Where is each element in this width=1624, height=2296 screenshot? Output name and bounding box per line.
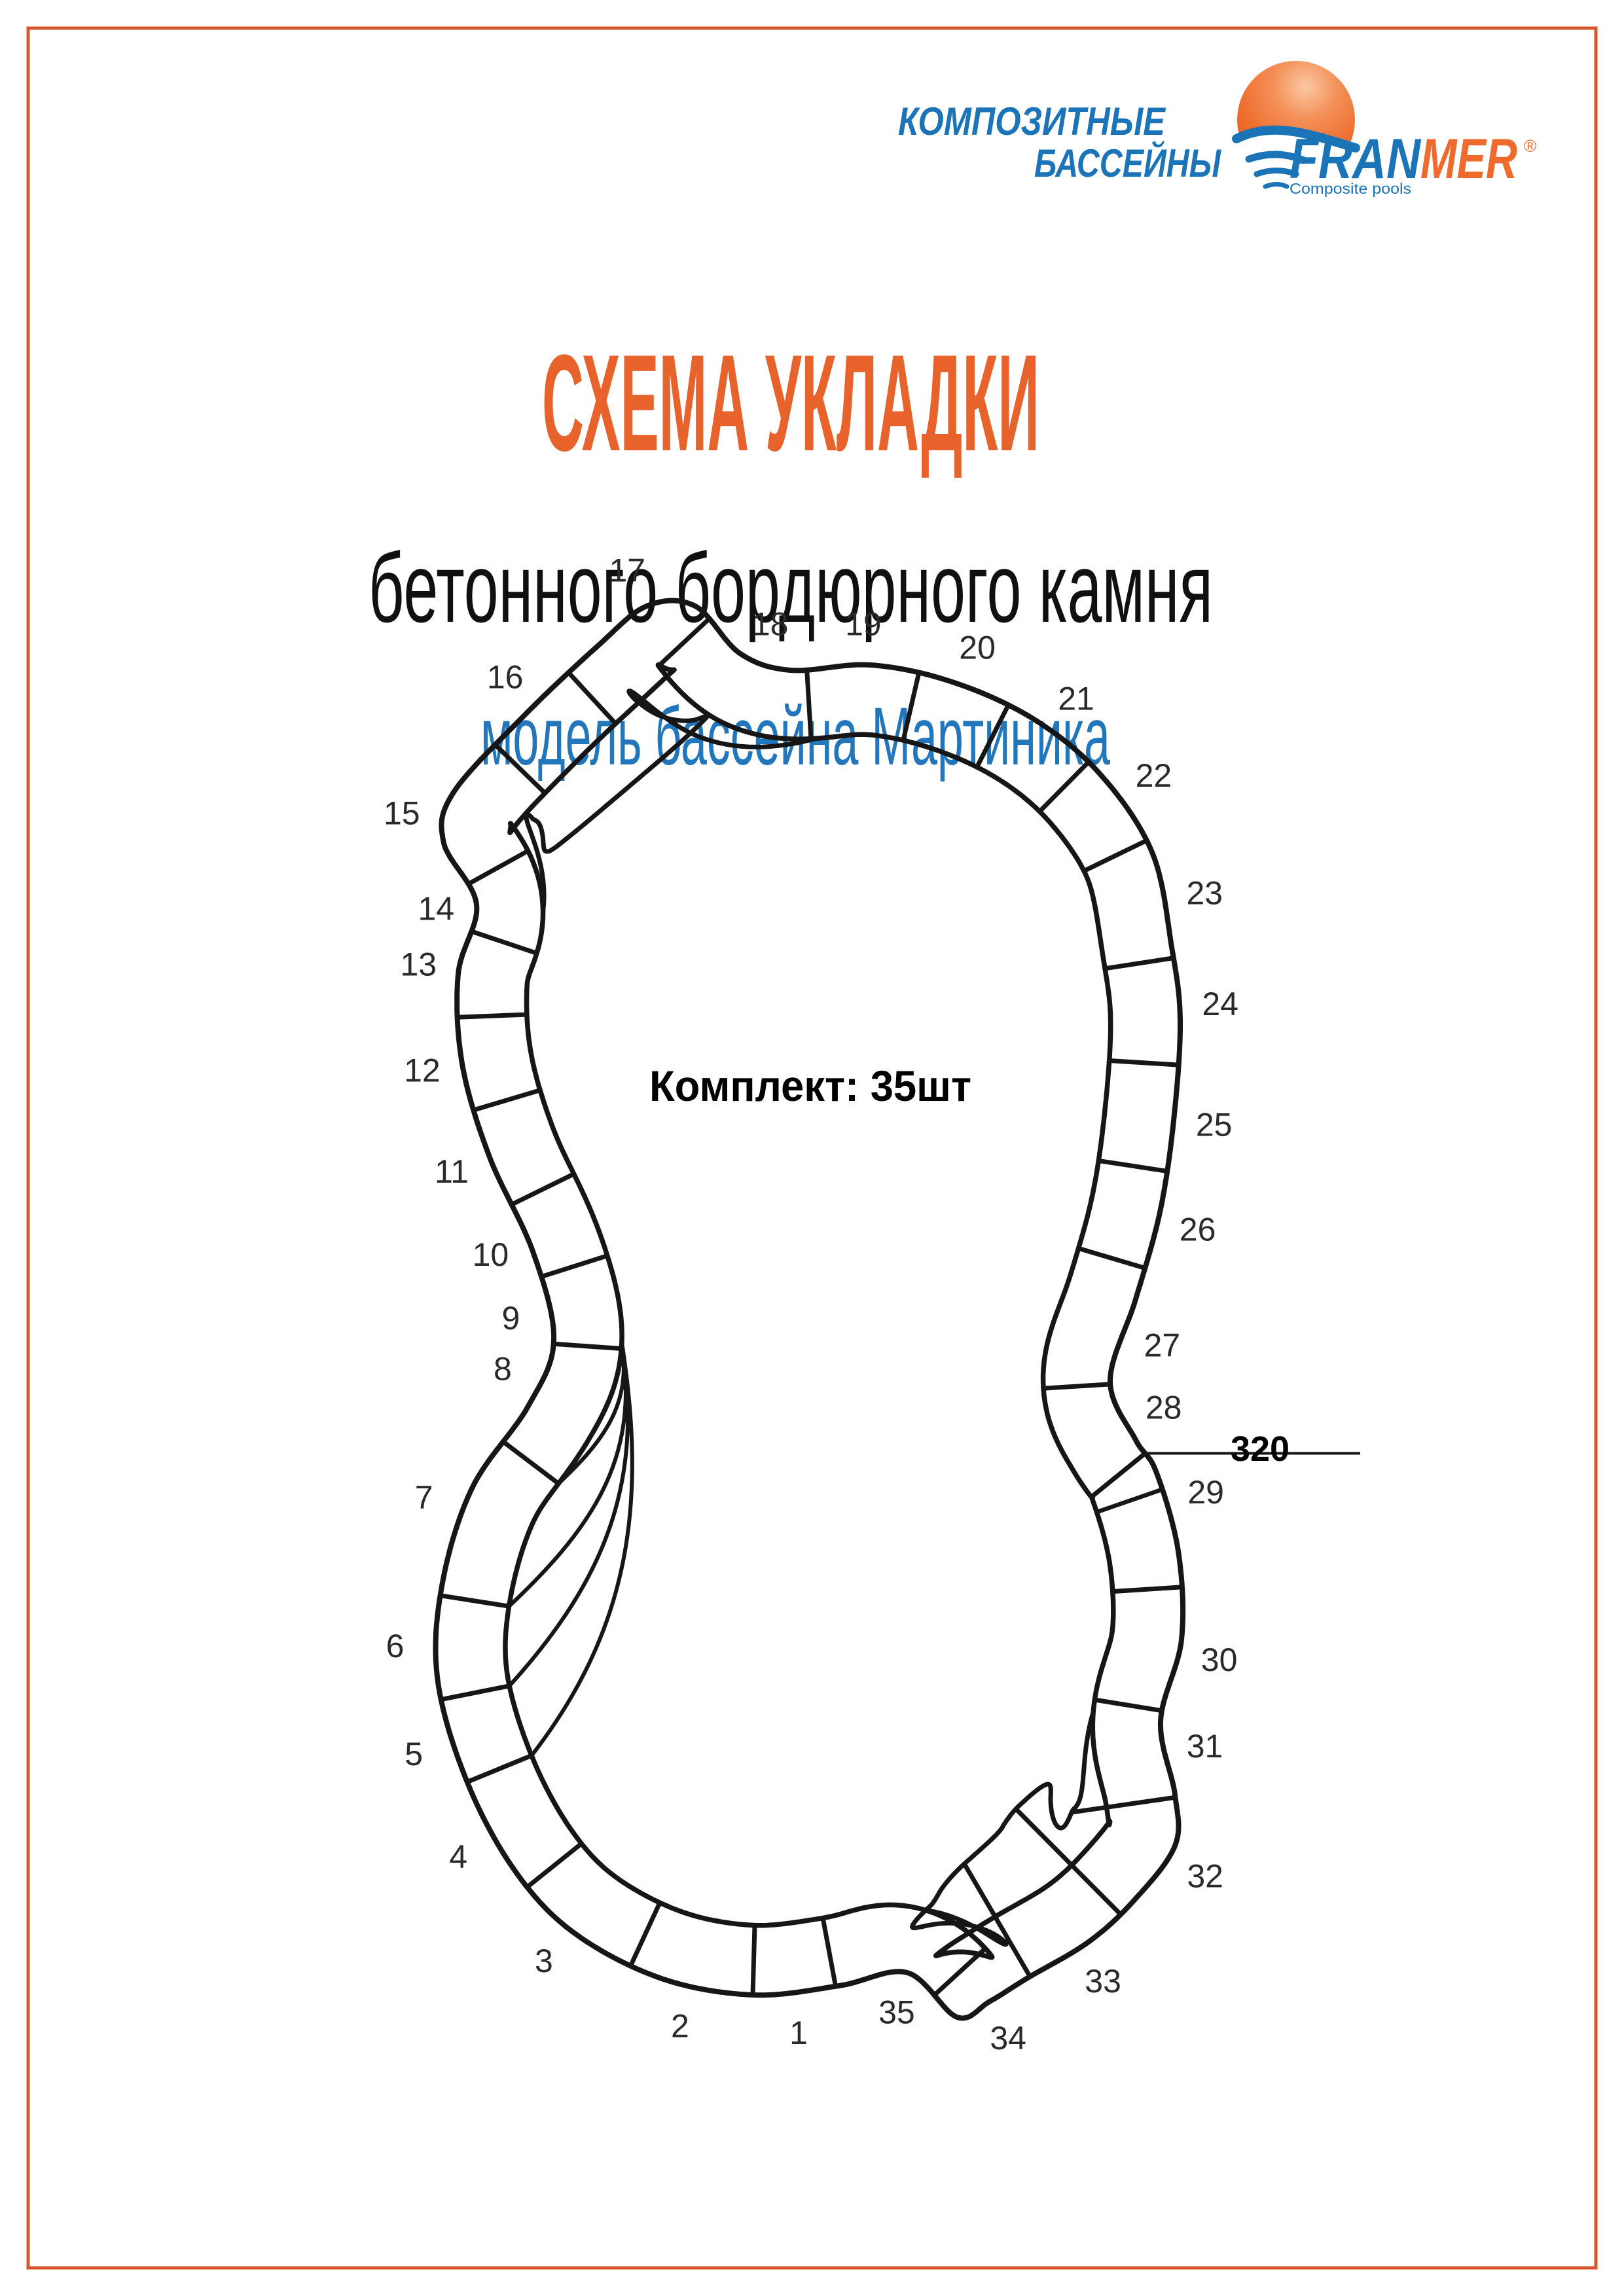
stone-number-24: 24 — [1202, 986, 1238, 1022]
stone-number-29: 29 — [1187, 1474, 1224, 1511]
stone-number-31: 31 — [1187, 1728, 1223, 1765]
dimension-320-label: 320 — [1231, 1429, 1290, 1469]
logo-tagline-line1: КОМПОЗИТНЫЕ — [898, 99, 1166, 143]
franmer-logo: КОМПОЗИТНЫЕ БАССЕЙНЫ FRANMER ® Composite… — [898, 61, 1536, 200]
stone-number-28: 28 — [1146, 1389, 1182, 1426]
stone-number-6: 6 — [386, 1628, 405, 1664]
stone-division-line — [471, 931, 537, 953]
stone-number-18: 18 — [752, 606, 789, 643]
stone-division-line — [1084, 840, 1147, 871]
stone-division-line — [554, 1344, 622, 1348]
stone-number-9: 9 — [501, 1300, 520, 1336]
stone-number-22: 22 — [1136, 757, 1172, 794]
stone-division-line — [512, 1174, 574, 1205]
stone-number-21: 21 — [1058, 681, 1094, 717]
stone-division-line — [1043, 1384, 1110, 1388]
stone-division-line — [527, 1844, 581, 1888]
brand-part-mer: MER — [1420, 128, 1517, 190]
page-subtitle: бетонного бордюрного камня — [369, 533, 1213, 643]
registered-trademark-icon: ® — [1524, 136, 1536, 156]
stone-number-10: 10 — [473, 1236, 509, 1273]
layout-scheme-page: КОМПОЗИТНЫЕ БАССЕЙНЫ FRANMER ® Composite… — [0, 0, 1624, 2296]
stone-number-13: 13 — [400, 946, 437, 983]
stone-division-line — [1072, 1797, 1175, 1812]
stone-division-line — [823, 1918, 836, 1986]
stone-number-19: 19 — [845, 606, 882, 643]
stone-division-line — [1098, 1160, 1167, 1171]
stone-number-35: 35 — [878, 1994, 915, 2031]
stone-number-23: 23 — [1186, 875, 1223, 912]
logo-tagline-line2: БАССЕЙНЫ — [1034, 141, 1222, 185]
stone-division-line — [473, 1090, 540, 1110]
stone-division-line — [1105, 958, 1174, 969]
stone-division-line — [1079, 1248, 1146, 1268]
stone-number-4: 4 — [449, 1839, 467, 1875]
stone-number-17: 17 — [609, 552, 645, 588]
pool-border-inner-outline — [505, 665, 1113, 1958]
stone-division-line — [753, 1926, 755, 1995]
stone-number-14: 14 — [418, 890, 454, 927]
stone-number-25: 25 — [1196, 1107, 1233, 1143]
stone-number-12: 12 — [404, 1052, 441, 1089]
stone-number-5: 5 — [405, 1736, 423, 1772]
stone-division-line — [469, 851, 528, 884]
stone-number-26: 26 — [1180, 1211, 1216, 1247]
stone-division-line — [630, 1903, 660, 1966]
stone-division-line — [541, 1256, 607, 1277]
stone-number-30: 30 — [1201, 1641, 1238, 1678]
stone-division-line — [1091, 1454, 1145, 1498]
cut-stone-wedge-line — [1096, 1490, 1162, 1513]
page-title: СХЕМА УКЛАДКИ — [542, 326, 1039, 480]
stone-number-1: 1 — [789, 2015, 808, 2051]
stone-number-2: 2 — [671, 2007, 689, 2044]
stone-number-27: 27 — [1144, 1327, 1180, 1363]
stone-number-34: 34 — [990, 2020, 1026, 2056]
stone-division-line — [467, 1755, 532, 1782]
pool-border-outer-outline — [436, 601, 1183, 2018]
stone-division-line — [1113, 1587, 1182, 1592]
stone-number-32: 32 — [1187, 1857, 1223, 1894]
layout-scheme-canvas: КОМПОЗИТНЫЕ БАССЕЙНЫ FRANMER ® Composite… — [0, 0, 1624, 2296]
stone-division-line — [503, 1442, 559, 1484]
stone-number-20: 20 — [959, 630, 996, 666]
stone-division-line — [458, 1014, 527, 1017]
stone-number-8: 8 — [494, 1351, 512, 1388]
stone-number-33: 33 — [1085, 1963, 1121, 2000]
stone-number-11: 11 — [435, 1153, 469, 1190]
kit-count-label: Комплект: 35шт — [649, 1062, 971, 1110]
stone-division-line — [441, 1686, 510, 1700]
stone-number-16: 16 — [487, 659, 524, 696]
logo-subtitle: Composite pools — [1290, 180, 1411, 197]
stone-division-line — [1094, 1700, 1162, 1711]
stone-number-7: 7 — [415, 1479, 433, 1516]
stone-number-3: 3 — [535, 1943, 553, 1979]
stone-division-line — [1110, 1061, 1179, 1066]
stone-number-15: 15 — [384, 795, 420, 831]
stone-division-line — [441, 1596, 509, 1607]
